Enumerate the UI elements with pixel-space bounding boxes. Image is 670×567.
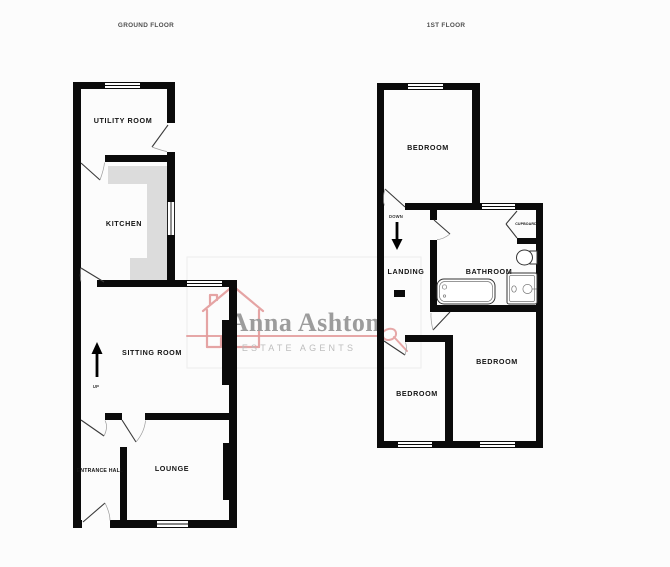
agency-name: Anna Ashton: [230, 308, 381, 337]
bedroom-bottom-left-window: [398, 441, 432, 448]
ground-floor-title: GROUND FLOOR: [118, 22, 174, 29]
room-label-kitchen: KITCHEN: [106, 219, 142, 228]
up-arrow-icon: [96, 352, 99, 377]
room-label-landing: LANDING: [388, 267, 425, 276]
bedroom-bottom-right-window: [480, 441, 515, 448]
room-label-lounge: LOUNGE: [155, 464, 189, 473]
kitchen-window: [167, 202, 175, 235]
room-label-sitting-room: SITTING ROOM: [122, 348, 182, 357]
room-label-cupboard: CUPBOARD: [515, 222, 537, 226]
floorplan-drawing: GROUND FLOOR 1ST FLOOR Anna Ashton ESTAT…: [0, 0, 670, 567]
first-floor-title: 1ST FLOOR: [427, 22, 466, 29]
staircase-down: [383, 222, 412, 295]
room-label-bedroom-top: BEDROOM: [407, 143, 449, 152]
stairs-down-label: DOWN: [389, 214, 403, 219]
room-label-bathroom: BATHROOM: [466, 267, 513, 276]
floorplan-page: GROUND FLOOR 1ST FLOOR Anna Ashton ESTAT…: [0, 0, 670, 567]
stairs-up-label: UP: [93, 384, 99, 389]
room-label-bedroom-bottom-left: BEDROOM: [396, 389, 438, 398]
ground-floor-walls: [73, 82, 237, 528]
utility-room-window: [105, 82, 140, 89]
staircase-up: [80, 300, 112, 377]
lounge-window: [157, 520, 188, 528]
first-floor-plan: BEDROOM DOWN LANDING BATHROOM CUPBOARD B…: [377, 83, 543, 448]
bathtub: [437, 279, 495, 304]
bedroom-top-window: [408, 83, 443, 90]
sink-unit: [507, 273, 537, 304]
down-arrow-icon: [396, 222, 399, 240]
room-label-utility: UTILITY ROOM: [94, 116, 153, 125]
agency-tagline: ESTATE AGENTS: [242, 343, 356, 353]
ground-floor-plan: UTILITY ROOM KITCHEN SITTING ROOM ENTRAN…: [73, 82, 237, 528]
room-label-bedroom-bottom-right: BEDROOM: [476, 357, 518, 366]
sitting-room-window: [187, 280, 222, 287]
toilet: [517, 250, 538, 265]
room-label-entrance-hall: ENTRANCE HALL: [77, 468, 124, 474]
bathroom-side-window: [482, 203, 515, 210]
